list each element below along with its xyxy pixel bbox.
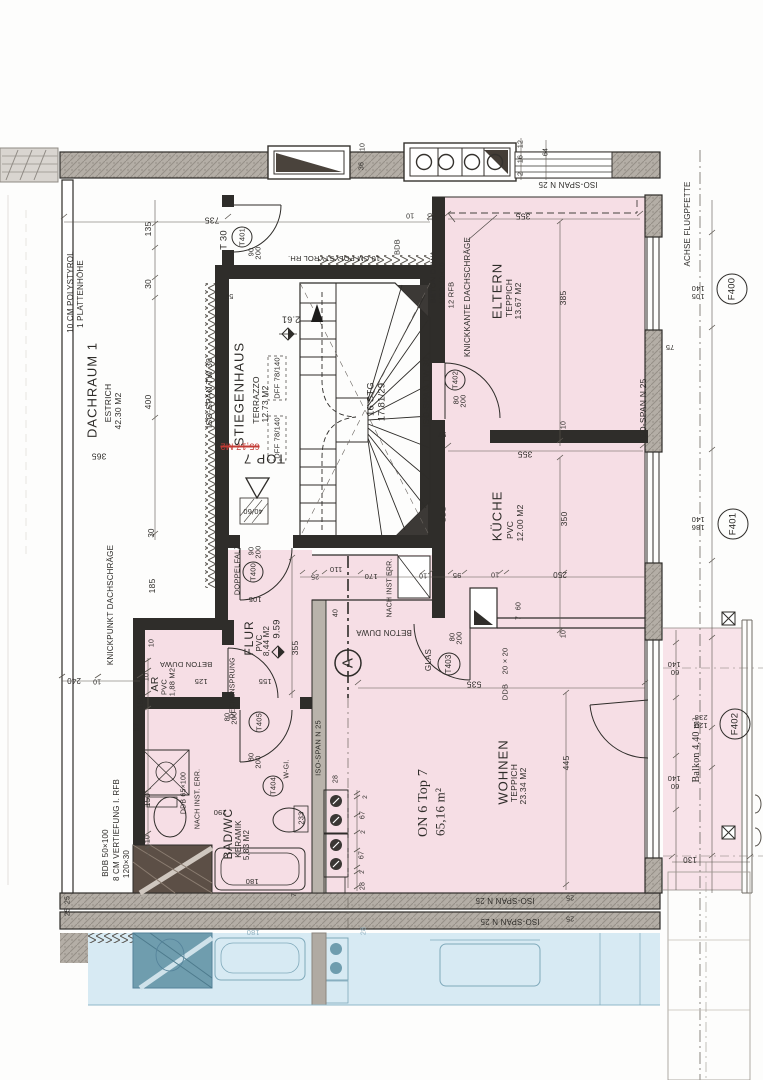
note-knickkante: KNICKKANTE DACHSCHRÄGE xyxy=(464,237,472,357)
dim-2: 2 xyxy=(360,870,367,874)
label-40-60: 40/60 xyxy=(243,507,263,515)
note-beton-duwa-ar: BETON DUWA xyxy=(160,660,212,668)
dim-10: 10 xyxy=(406,212,414,219)
note-rfb: 12 RFB xyxy=(447,282,455,309)
dim-36: 36 xyxy=(359,162,366,170)
note-knickpunkt: KNICKPUNKT DACHSCHRÄGE xyxy=(107,545,115,665)
note-nach-inst-err-2: NACH INST. ERR. xyxy=(195,769,202,830)
door-size-200: 200 xyxy=(230,711,238,724)
dim-25: 25 xyxy=(65,908,72,916)
room-flur-area: 8,44 M2 xyxy=(263,626,271,656)
note-nach-inst-err-1: NACH INST ERR. xyxy=(387,558,394,617)
dim-140: 140 xyxy=(667,774,680,782)
room-stiegenhaus-name: STIEGENHAUS xyxy=(233,342,246,446)
dim-10: 10 xyxy=(491,571,499,578)
dim-180-mirror: 180 xyxy=(246,928,259,936)
door-size-200: 200 xyxy=(459,394,467,407)
floorplan-canvas: ISO-SPAN N 251216264103673510 CM POLYSTY… xyxy=(0,0,763,1080)
door-note-t30: T 30 xyxy=(219,230,229,250)
dim-60: 60 xyxy=(671,668,680,676)
dim-28: 28 xyxy=(333,775,340,783)
room-kueche-area: 12.00 M2 xyxy=(516,504,525,541)
window-size-186: 186 xyxy=(691,523,704,531)
dim-7: 7 xyxy=(516,616,523,620)
dim-95: 95 xyxy=(453,571,462,579)
door-size-200: 200 xyxy=(455,631,463,644)
level-261: 2.61 xyxy=(282,315,300,324)
room-wohnen-name: WOHNEN xyxy=(497,739,510,804)
door-tag-t404: T404 xyxy=(269,777,277,795)
dim-10: 10 xyxy=(419,572,427,579)
dim-180: 180 xyxy=(245,877,258,885)
window-size-140: 140 xyxy=(691,284,704,292)
dim-355: 355 xyxy=(516,212,531,221)
door-tag-t401: T401 xyxy=(238,228,246,246)
window-tag-f400: F400 xyxy=(727,278,737,300)
note-deckensprung: DECKENSPRUNG xyxy=(230,657,237,719)
door-tag-t403: T403 xyxy=(445,654,453,673)
unit-label-line2: 65,16 m² xyxy=(434,788,447,836)
wall-label-iso-span-mid: ISO-SPAN N 25 xyxy=(314,720,322,776)
stair-rise-run: 17.81/29 xyxy=(377,383,387,422)
dim-110: 110 xyxy=(330,565,343,573)
dim-240: 240 xyxy=(67,676,81,684)
note-beton-duwa-kueche: BETON DUWA xyxy=(356,628,412,636)
dim-57: 57 xyxy=(225,292,234,300)
dim-735: 735 xyxy=(205,216,220,225)
dim-60: 60 xyxy=(671,782,680,790)
label-ddb: DDB xyxy=(501,684,509,700)
dim-30: 30 xyxy=(148,528,156,537)
note-polystyrol-left-2: 1 PLATTENHÖHE xyxy=(77,260,85,328)
wall-label-iso-span-tw30-right: ISO-SPAN TW 30 xyxy=(422,357,431,427)
dim-10: 10 xyxy=(561,630,568,638)
dim-170: 170 xyxy=(364,572,377,580)
dim-2: 2 xyxy=(361,830,368,834)
dim-16: 16 xyxy=(518,155,525,163)
dim-233: 233 xyxy=(297,811,305,824)
level-959: 9.59 xyxy=(272,619,282,638)
note-120-30: 120×30 xyxy=(123,850,131,878)
dim-135: 135 xyxy=(144,222,153,237)
section-marker-a: A xyxy=(341,658,356,668)
dim-355: 355 xyxy=(518,450,533,459)
dim-10: 10 xyxy=(149,639,156,647)
wall-label-iso-span-top: ISO-SPAN N 25 xyxy=(538,180,597,188)
door-note-doppelfalz: DOPPELFALZ xyxy=(233,545,241,595)
dim-130: 130 xyxy=(683,855,697,863)
door-note-glas: GLAS xyxy=(425,649,433,671)
door-tag-t400: T400 xyxy=(249,563,257,581)
dim-105: 105 xyxy=(248,595,261,603)
window-size-140: 140 xyxy=(691,515,704,523)
dim-10: 10 xyxy=(93,678,101,685)
dim-25: 25 xyxy=(311,573,319,580)
door-size-200: 200 xyxy=(254,545,262,558)
label-w-gi: W-GI. xyxy=(284,759,291,778)
room-ar-area: 1,88 M2 xyxy=(168,668,176,697)
door-size-200: 200 xyxy=(254,755,262,768)
wall-label-iso-span-right: ISO-SPAN N 25 xyxy=(639,379,648,442)
wall-label-iso-span-tw30-left: ISO-SPAN TW 30 xyxy=(205,358,214,428)
note-polystyrol-left-1: 10 CM POLYSTYROL xyxy=(67,251,75,333)
dim-10: 10 xyxy=(360,143,367,151)
dim-60: 60 xyxy=(516,602,523,610)
dim-12: 12 xyxy=(518,140,525,148)
note-vertiefung: 8 CM VERTIEFUNG I. RFB xyxy=(113,779,121,881)
label-dff-1: DFF 78/140 xyxy=(273,357,281,399)
note-beton-duwa-eltern: BETON DUWA xyxy=(429,251,437,303)
dim-75: 75 xyxy=(666,343,675,351)
note-mdb: MDB 40×10 xyxy=(438,262,446,304)
dim-140: 140 xyxy=(667,660,680,668)
door-tag-t405: T405 xyxy=(255,713,263,731)
room-stiegenhaus-area: 12.73 M2 xyxy=(261,385,270,422)
room-eltern-area: 13.67 M2 xyxy=(514,282,523,319)
dim-150: 150 xyxy=(137,695,145,709)
wall-label-iso-span-bottom-2: ISO-SPAN N 25 xyxy=(480,917,539,925)
dim-64: 64 xyxy=(543,148,550,156)
dim-385: 385 xyxy=(559,291,568,306)
window-tag-f401: F401 xyxy=(728,513,738,535)
door-tag-t402: T402 xyxy=(451,371,459,389)
room-dachraum-finish: ESTRICH xyxy=(104,384,113,423)
dim-10: 10 xyxy=(144,673,151,681)
note-polystyrol-top: 10 CM POLYSTYROL RH. xyxy=(288,254,380,262)
dim-10: 10 xyxy=(145,835,152,843)
dim-67: 67 xyxy=(359,851,366,859)
label-20-20: 20 × 20 xyxy=(501,648,509,675)
dim-535: 535 xyxy=(467,680,482,689)
room-flur-name: FLUR xyxy=(243,620,255,655)
dim-25: 25 xyxy=(566,915,574,922)
room-eltern-name: ELTERN xyxy=(491,263,504,319)
room-bad-area: 5,83 M2 xyxy=(243,830,251,860)
door-size-200: 200 xyxy=(254,246,262,259)
note-achse-flugpfette: ACHSE FLUGPFETTE xyxy=(684,182,692,267)
note-ddb-65-100: DDB 65×100 xyxy=(181,772,188,814)
wall-label-iso-span-bottom-1: ISO-SPAN N 25 xyxy=(475,896,534,904)
stair-steps: 16 STG xyxy=(366,382,376,416)
room-kueche-name: KÜCHE xyxy=(491,491,504,542)
dim-355: 355 xyxy=(291,641,300,656)
dim-155: 155 xyxy=(258,677,271,685)
dim-28-mirror: 28 xyxy=(361,927,368,935)
dim-67: 67 xyxy=(360,811,367,819)
dim-350: 350 xyxy=(560,512,569,527)
room-wohnen-area: 23.34 M2 xyxy=(519,767,528,804)
dim-400: 400 xyxy=(144,395,153,410)
dim-2: 2 xyxy=(363,795,370,799)
room-balkon-label: Balkon 4,40 m² xyxy=(692,718,702,783)
dim-150: 150 xyxy=(144,793,152,807)
room-dachraum-area: 42.30 M2 xyxy=(114,392,123,429)
dim-7: 7 xyxy=(292,893,299,897)
label-bdb-top: BDB xyxy=(393,239,401,255)
dim-25: 25 xyxy=(566,894,574,901)
dim-10: 10 xyxy=(428,213,435,221)
note-bdb-50-100: BDB 50×100 xyxy=(102,829,110,877)
room-kueche-finish: PVC xyxy=(506,521,515,539)
dim-290: 290 xyxy=(213,808,226,816)
unit-top-label: TOP 7 xyxy=(243,453,285,466)
dim-185: 185 xyxy=(148,579,157,594)
dim-30: 30 xyxy=(144,279,153,289)
dim-2: 2 xyxy=(518,172,525,176)
dim-445: 445 xyxy=(562,756,571,771)
dim-28: 28 xyxy=(360,882,367,890)
dim-365: 365 xyxy=(92,452,107,461)
unit-label-line1: ON 6 Top 7 xyxy=(417,769,431,837)
window-tag-f402: F402 xyxy=(730,713,740,735)
dim-40: 40 xyxy=(333,609,340,617)
label-bdb-kueche: BDB xyxy=(439,506,447,522)
unit-area-crossed: 65,17 M2 xyxy=(220,442,259,451)
dim-57: 57 xyxy=(132,723,140,732)
window-size-105: 105 xyxy=(691,292,704,300)
room-dachraum-name: DACHRAUM 1 xyxy=(86,342,99,438)
dim-10: 10 xyxy=(561,421,568,429)
dim-125: 125 xyxy=(194,677,207,685)
dim-250: 250 xyxy=(553,570,567,578)
annotation-layer: ISO-SPAN N 251216264103673510 CM POLYSTY… xyxy=(0,0,763,1080)
dim-57: 57 xyxy=(438,430,447,438)
dim-25: 25 xyxy=(65,896,72,904)
